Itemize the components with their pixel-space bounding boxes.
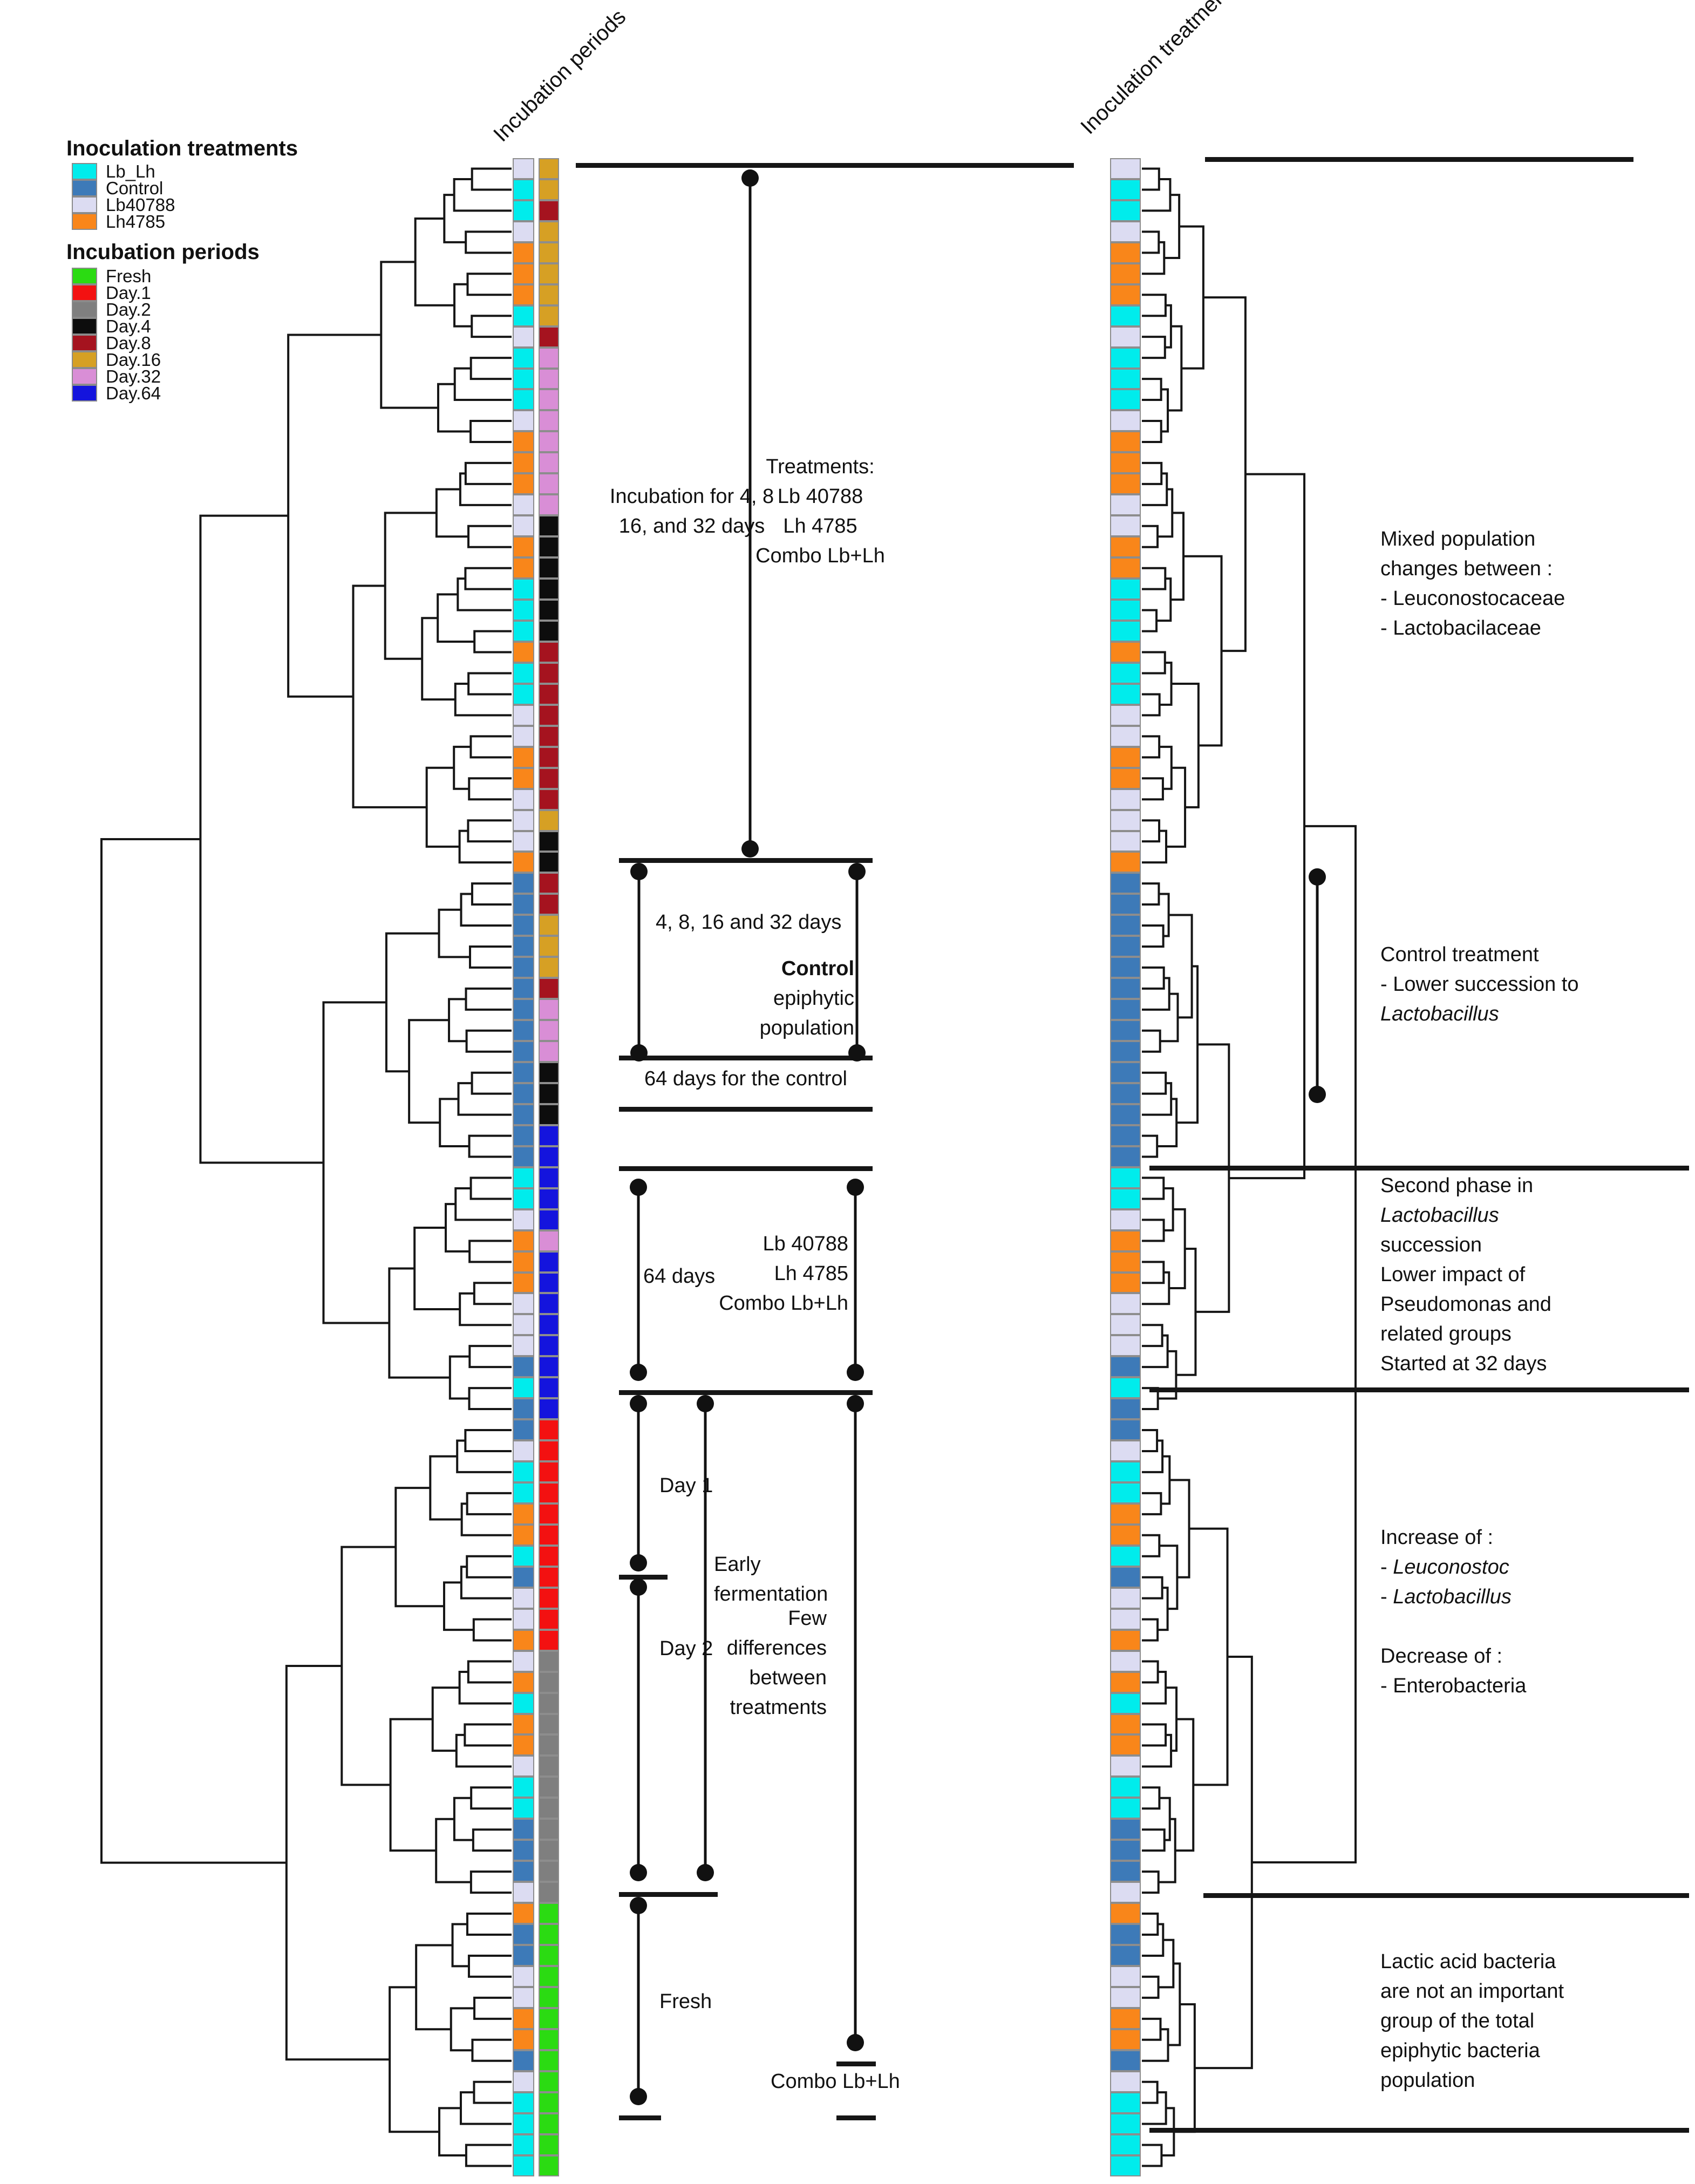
- heat-cell-Day.16: [539, 221, 559, 242]
- heat-cell-Day.64: [539, 1125, 559, 1146]
- heat-cell-Day.32: [539, 1230, 559, 1251]
- heat-cell-Lb_Lh: [1110, 369, 1141, 390]
- bracket-dot-icon: [1309, 1086, 1326, 1103]
- heat-cell-Day.8: [539, 894, 559, 915]
- heat-cell-Lh4785: [513, 431, 534, 452]
- heat-cell-Day.64: [539, 1273, 559, 1294]
- heat-cell-Day.8: [539, 684, 559, 705]
- heat-cell-Lb_Lh: [513, 389, 534, 410]
- annotation-day2: Day 2: [659, 1634, 713, 1664]
- heat-cell-Lh4785: [1110, 747, 1141, 768]
- heat-cell-Day.4: [539, 621, 559, 642]
- heat-cell-Control: [1110, 1083, 1141, 1104]
- heat-cell-Day.8: [539, 200, 559, 221]
- heat-cell-Fresh: [539, 2155, 559, 2176]
- heat-cell-Lh4785: [513, 473, 534, 494]
- heat-cell-Day.64: [539, 1377, 559, 1398]
- heat-cell-Lh4785: [513, 284, 534, 305]
- heat-cell-Lb_Lh: [513, 663, 534, 684]
- legend-period-swatch-icon: [72, 368, 97, 385]
- heat-cell-Lb_Lh: [513, 1461, 534, 1482]
- heat-cell-Lh4785: [1110, 242, 1141, 263]
- heat-cell-Lb40788: [513, 494, 534, 515]
- legend-period-item: Day.8: [72, 335, 161, 351]
- bracket-dot-icon: [630, 1179, 647, 1196]
- heat-cell-Lb40788: [1110, 2071, 1141, 2092]
- heat-cell-Day.64: [539, 1314, 559, 1335]
- heat-cell-Day.64: [539, 1167, 559, 1188]
- heat-cell-Lh4785: [1110, 1273, 1141, 1294]
- heat-cell-Lb_Lh: [1110, 684, 1141, 705]
- heat-cell-Lb_Lh: [513, 348, 534, 369]
- heat-cell-Lb_Lh: [1110, 1546, 1141, 1567]
- legend-period-item: Day.64: [72, 385, 161, 402]
- heat-cell-Day.2: [539, 1819, 559, 1840]
- heat-cell-Day.1: [539, 1525, 559, 1546]
- heat-cell-Fresh: [539, 2008, 559, 2029]
- heat-cell-Lh4785: [513, 536, 534, 557]
- heat-cell-Lh4785: [513, 2029, 534, 2050]
- heat-cell-Lb40788: [513, 789, 534, 810]
- bracket-dot-icon: [630, 1579, 647, 1596]
- heat-cell-Lb_Lh: [1110, 1377, 1141, 1398]
- bracket-dot-icon: [630, 1897, 647, 1914]
- heat-cell-Lb40788: [513, 810, 534, 831]
- separator-rule: [1203, 1893, 1689, 1898]
- heat-cell-Lh4785: [1110, 1251, 1141, 1273]
- heat-cell-Lb_Lh: [513, 1188, 534, 1209]
- legend-period-swatch-icon: [72, 385, 97, 402]
- heat-cell-Control: [1110, 873, 1141, 894]
- heat-cell-Lb40788: [1110, 1209, 1141, 1230]
- heat-cell-Lb40788: [513, 1882, 534, 1903]
- heat-cell-Control: [1110, 1398, 1141, 1419]
- heat-cell-Control: [513, 1924, 534, 1945]
- heat-cell-Control: [513, 957, 534, 978]
- heat-cell-Lb_Lh: [513, 2155, 534, 2176]
- heat-cell-Lb_Lh: [1110, 389, 1141, 410]
- heat-cell-Day.2: [539, 1840, 559, 1861]
- heat-cell-Lh4785: [513, 1734, 534, 1756]
- annotation-control-epiphytic: Controlepiphyticpopulation: [760, 954, 854, 1043]
- heat-cell-Control: [1110, 1861, 1141, 1882]
- heat-cell-Control: [1110, 915, 1141, 936]
- right-treatments-color-column: [1110, 158, 1141, 2176]
- heat-cell-Day.8: [539, 789, 559, 810]
- heat-cell-Lh4785: [513, 242, 534, 263]
- heat-cell-Day.4: [539, 1083, 559, 1104]
- heat-cell-Day.32: [539, 369, 559, 390]
- heat-cell-Day.64: [539, 1398, 559, 1419]
- annotation-lactic-acid: Lactic acid bacteriaare not an important…: [1380, 1947, 1564, 2095]
- heat-cell-Lb40788: [513, 1335, 534, 1356]
- heat-cell-Fresh: [539, 1903, 559, 1924]
- heat-cell-Day.1: [539, 1609, 559, 1630]
- heat-cell-Control: [513, 936, 534, 957]
- heat-cell-Lh4785: [1110, 1672, 1141, 1693]
- heat-cell-Fresh: [539, 2029, 559, 2050]
- heat-cell-Lh4785: [513, 452, 534, 473]
- heat-cell-Control: [513, 894, 534, 915]
- annotation-day1: Day 1: [659, 1471, 713, 1501]
- heat-cell-Fresh: [539, 2134, 559, 2155]
- legend-period-label: Day.8: [106, 335, 151, 351]
- heat-cell-Control: [1110, 1062, 1141, 1083]
- heat-cell-Control: [1110, 1020, 1141, 1041]
- annotation-days64-control: 64 days for the control: [644, 1064, 847, 1094]
- heat-cell-Day.4: [539, 600, 559, 621]
- heat-cell-Control: [513, 1041, 534, 1062]
- heat-cell-Lh4785: [513, 1672, 534, 1693]
- heat-cell-Lb40788: [1110, 326, 1141, 348]
- heat-cell-Day.64: [539, 1146, 559, 1167]
- legend-period-swatch-icon: [72, 351, 97, 368]
- heat-cell-Lh4785: [513, 642, 534, 663]
- annotation-incubation-4-32: Incubation for 4, 816, and 32 days: [610, 482, 774, 541]
- heat-cell-Lb_Lh: [513, 1377, 534, 1398]
- heat-cell-Day.2: [539, 1777, 559, 1798]
- heat-cell-Day.2: [539, 1651, 559, 1672]
- heat-cell-Lb40788: [513, 221, 534, 242]
- heat-cell-Day.8: [539, 978, 559, 999]
- heat-cell-Lb_Lh: [513, 2134, 534, 2155]
- bracket-dot-icon: [741, 169, 759, 187]
- heat-cell-Control: [1110, 1041, 1141, 1062]
- annotation-few-differences: Fewdifferencesbetweentreatments: [727, 1604, 827, 1723]
- heat-cell-Day.2: [539, 1693, 559, 1714]
- heat-cell-Lb_Lh: [1110, 200, 1141, 221]
- heat-cell-Day.16: [539, 305, 559, 326]
- heat-cell-Lb_Lh: [513, 621, 534, 642]
- annotation-mixed-population: Mixed populationchanges between :- Leuco…: [1380, 525, 1565, 643]
- heat-cell-Day.64: [539, 1356, 559, 1377]
- heat-cell-Fresh: [539, 1924, 559, 1945]
- heat-cell-Control: [513, 2050, 534, 2071]
- heat-cell-Day.16: [539, 936, 559, 957]
- legend-period-item: Day.32: [72, 368, 161, 385]
- separator-rule: [576, 163, 1074, 168]
- separator-rule: [619, 2115, 661, 2120]
- heat-cell-Control: [513, 999, 534, 1020]
- legend-period-label: Day.2: [106, 301, 151, 318]
- separator-rule: [1149, 2128, 1689, 2133]
- heat-cell-Day.32: [539, 348, 559, 369]
- heat-cell-Lb40788: [513, 1293, 534, 1314]
- heat-cell-Lb40788: [513, 410, 534, 431]
- heat-cell-Day.1: [539, 1588, 559, 1609]
- heat-cell-Lb40788: [513, 158, 534, 179]
- heat-cell-Lb40788: [1110, 1651, 1141, 1672]
- heat-cell-Lb_Lh: [513, 1777, 534, 1798]
- separator-rule: [619, 1390, 873, 1395]
- heat-cell-Control: [1110, 1567, 1141, 1588]
- legend-period-label: Day.4: [106, 318, 151, 335]
- heat-cell-Day.16: [539, 179, 559, 200]
- legend-treatments: Lb_LhControlLb40788Lh4785: [72, 163, 175, 230]
- heat-cell-Lb_Lh: [1110, 663, 1141, 684]
- heat-cell-Day.4: [539, 515, 559, 536]
- heat-cell-Control: [513, 1819, 534, 1840]
- heat-cell-Day.2: [539, 1714, 559, 1735]
- heat-cell-Lh4785: [513, 1273, 534, 1294]
- separator-rule: [1205, 157, 1633, 162]
- heat-cell-Lb40788: [1110, 789, 1141, 810]
- legend-treatment-item: Lb_Lh: [72, 163, 175, 180]
- heat-cell-Day.4: [539, 536, 559, 557]
- heat-cell-Lh4785: [1110, 2008, 1141, 2029]
- heat-cell-Lb40788: [1110, 726, 1141, 747]
- legend-period-label: Day.1: [106, 284, 151, 301]
- legend-title-periods: Incubation periods: [66, 240, 260, 264]
- left-periods-color-column: [539, 158, 559, 2176]
- left-dendrogram: [101, 168, 512, 2166]
- heat-cell-Day.16: [539, 242, 559, 263]
- heat-cell-Lb_Lh: [1110, 1693, 1141, 1714]
- bracket-dot-icon: [697, 1864, 714, 1881]
- annotation-brackets: [630, 169, 1326, 2105]
- heat-cell-Lh4785: [513, 557, 534, 579]
- heat-cell-Lh4785: [513, 1630, 534, 1651]
- heat-cell-Day.1: [539, 1630, 559, 1651]
- legend-period-item: Day.1: [72, 284, 161, 301]
- bracket-dot-icon: [630, 1864, 647, 1881]
- heat-cell-Day.32: [539, 389, 559, 410]
- heat-cell-Fresh: [539, 1945, 559, 1966]
- heat-cell-Day.16: [539, 263, 559, 284]
- heat-cell-Day.1: [539, 1440, 559, 1461]
- annotation-early-fermentation: Earlyfermentation: [714, 1550, 828, 1609]
- heat-cell-Day.4: [539, 1104, 559, 1125]
- legend-period-label: Day.16: [106, 351, 161, 368]
- heat-cell-Control: [513, 1945, 534, 1966]
- heat-cell-Control: [1110, 894, 1141, 915]
- heat-cell-Day.4: [539, 1062, 559, 1083]
- heat-cell-Lh4785: [1110, 1630, 1141, 1651]
- heat-cell-Fresh: [539, 1987, 559, 2008]
- heat-cell-Lb_Lh: [1110, 600, 1141, 621]
- legend-title-treatments: Inoculation treatments: [66, 137, 298, 161]
- heat-cell-Control: [1110, 1419, 1141, 1440]
- heat-cell-Lb40788: [513, 1588, 534, 1609]
- separator-rule: [836, 2115, 876, 2120]
- bracket-dot-icon: [630, 1554, 647, 1571]
- heat-cell-Lb_Lh: [1110, 179, 1141, 200]
- legend-period-label: Fresh: [106, 268, 151, 284]
- legend-treatment-swatch-icon: [72, 180, 97, 196]
- bracket-dot-icon: [1309, 868, 1326, 886]
- legend-treatment-item: Control: [72, 180, 175, 196]
- legend-periods: FreshDay.1Day.2Day.4Day.8Day.16Day.32Day…: [72, 268, 161, 402]
- annotation-control-treatment: Control treatment- Lower succession toLa…: [1380, 940, 1579, 1029]
- heat-cell-Lh4785: [1110, 473, 1141, 494]
- heat-cell-Control: [513, 915, 534, 936]
- heat-cell-Day.4: [539, 831, 559, 852]
- heat-cell-Day.16: [539, 158, 559, 179]
- heat-cell-Lh4785: [513, 768, 534, 789]
- annotation-second-phase: Second phase inLactobacillussuccessionLo…: [1380, 1171, 1551, 1379]
- heat-cell-Lh4785: [513, 852, 534, 873]
- heat-cell-Control: [513, 1104, 534, 1125]
- heat-cell-Day.64: [539, 1188, 559, 1209]
- heat-cell-Day.8: [539, 326, 559, 348]
- heat-cell-Control: [1110, 1840, 1141, 1861]
- heat-cell-Control: [513, 1020, 534, 1041]
- heat-cell-Lb40788: [513, 1440, 534, 1461]
- heat-cell-Lh4785: [1110, 284, 1141, 305]
- heat-cell-Day.8: [539, 705, 559, 726]
- heat-cell-Lb40788: [513, 326, 534, 348]
- heat-cell-Control: [513, 1356, 534, 1377]
- heat-cell-Day.32: [539, 473, 559, 494]
- heat-cell-Day.32: [539, 1020, 559, 1041]
- heat-cell-Control: [513, 1146, 534, 1167]
- heat-cell-Lb_Lh: [1110, 579, 1141, 600]
- heat-cell-Lh4785: [1110, 1230, 1141, 1251]
- separator-rule: [619, 858, 873, 863]
- heat-cell-Fresh: [539, 2050, 559, 2071]
- bracket-dot-icon: [848, 1044, 866, 1062]
- heat-cell-Day.32: [539, 431, 559, 452]
- heat-cell-Lb_Lh: [1110, 1167, 1141, 1188]
- heat-cell-Control: [513, 873, 534, 894]
- legend-treatment-item: Lh4785: [72, 213, 175, 230]
- heat-cell-Lh4785: [513, 2008, 534, 2029]
- heat-cell-Lb40788: [1110, 410, 1141, 431]
- heat-cell-Lb_Lh: [513, 684, 534, 705]
- heat-cell-Lb_Lh: [513, 305, 534, 326]
- heat-cell-Day.32: [539, 410, 559, 431]
- heat-cell-Control: [1110, 978, 1141, 999]
- heat-cell-Lb40788: [1110, 494, 1141, 515]
- legend-treatment-item: Lb40788: [72, 196, 175, 213]
- heat-cell-Control: [1110, 1819, 1141, 1840]
- heat-cell-Lb40788: [513, 1966, 534, 1987]
- heat-cell-Control: [513, 1398, 534, 1419]
- heat-cell-Lb40788: [1110, 831, 1141, 852]
- heat-cell-Day.2: [539, 1734, 559, 1756]
- legend-period-item: Day.2: [72, 301, 161, 318]
- heat-cell-Lb40788: [1110, 1335, 1141, 1356]
- heat-cell-Lh4785: [513, 747, 534, 768]
- heat-cell-Day.2: [539, 1756, 559, 1777]
- heat-cell-Day.16: [539, 957, 559, 978]
- heat-cell-Lb40788: [1110, 221, 1141, 242]
- heat-cell-Lb40788: [1110, 1314, 1141, 1335]
- heat-cell-Lh4785: [1110, 1903, 1141, 1924]
- heat-cell-Lb40788: [513, 1651, 534, 1672]
- heat-cell-Day.8: [539, 747, 559, 768]
- annotation-treatments-mid: Lb 40788Lh 4785Combo Lb+Lh: [719, 1229, 848, 1318]
- legend-treatment-label: Lb_Lh: [106, 163, 155, 180]
- heat-cell-Day.1: [539, 1482, 559, 1503]
- heat-cell-Lb40788: [1110, 1987, 1141, 2008]
- heat-cell-Lb_Lh: [513, 200, 534, 221]
- dendrogram-svg: [0, 0, 1695, 2184]
- heat-cell-Lb_Lh: [1110, 621, 1141, 642]
- legend-period-swatch-icon: [72, 335, 97, 351]
- legend-period-label: Day.64: [106, 385, 161, 402]
- heat-cell-Day.32: [539, 452, 559, 473]
- bracket-dot-icon: [630, 1395, 647, 1412]
- heat-cell-Fresh: [539, 1966, 559, 1987]
- heat-cell-Control: [1110, 957, 1141, 978]
- heat-cell-Day.4: [539, 579, 559, 600]
- heat-cell-Lb_Lh: [513, 1798, 534, 1819]
- heat-cell-Lh4785: [513, 1903, 534, 1924]
- bracket-dot-icon: [847, 1364, 864, 1381]
- heat-cell-Control: [1110, 2050, 1141, 2071]
- heat-cell-Lh4785: [1110, 452, 1141, 473]
- heat-cell-Lh4785: [513, 1525, 534, 1546]
- bracket-dot-icon: [847, 1395, 864, 1412]
- heat-cell-Day.2: [539, 1672, 559, 1693]
- heat-cell-Lb_Lh: [1110, 1798, 1141, 1819]
- heat-cell-Lh4785: [1110, 1714, 1141, 1735]
- heat-cell-Lb_Lh: [1110, 2113, 1141, 2134]
- heat-cell-Control: [1110, 1104, 1141, 1125]
- heat-cell-Lb_Lh: [513, 579, 534, 600]
- legend-period-item: Fresh: [72, 268, 161, 284]
- heat-cell-Day.2: [539, 1861, 559, 1882]
- heat-cell-Control: [513, 978, 534, 999]
- separator-rule: [619, 1166, 873, 1171]
- bracket-dot-icon: [630, 1364, 647, 1381]
- heat-cell-Day.1: [539, 1567, 559, 1588]
- heat-cell-Lb_Lh: [1110, 348, 1141, 369]
- heat-cell-Lb40788: [1110, 1293, 1141, 1314]
- heat-cell-Day.8: [539, 642, 559, 663]
- heat-cell-Lb_Lh: [1110, 2134, 1141, 2155]
- heat-cell-Control: [1110, 1125, 1141, 1146]
- heat-cell-Lb40788: [513, 515, 534, 536]
- legend-period-item: Day.4: [72, 318, 161, 335]
- legend-treatment-label: Lh4785: [106, 213, 165, 230]
- annotation-fresh-label: Fresh: [659, 1987, 712, 2017]
- heat-cell-Lb_Lh: [513, 1482, 534, 1503]
- heat-cell-Day.64: [539, 1335, 559, 1356]
- heat-cell-Lb_Lh: [513, 600, 534, 621]
- bracket-dot-icon: [630, 2088, 647, 2105]
- heat-cell-Day.64: [539, 1251, 559, 1273]
- separator-rule: [1149, 1166, 1689, 1171]
- heat-cell-Lb40788: [1110, 810, 1141, 831]
- heat-cell-Lb40788: [513, 726, 534, 747]
- heat-cell-Control: [1110, 1146, 1141, 1167]
- heat-cell-Lb40788: [513, 2071, 534, 2092]
- heat-cell-Control: [513, 1567, 534, 1588]
- heat-cell-Lb_Lh: [1110, 1461, 1141, 1482]
- heat-cell-Lh4785: [1110, 852, 1141, 873]
- heat-cell-Lh4785: [1110, 431, 1141, 452]
- heat-cell-Lb40788: [1110, 1440, 1141, 1461]
- annotation-days-4-32: 4, 8, 16 and 32 days: [656, 908, 841, 937]
- heat-cell-Control: [513, 1861, 534, 1882]
- heat-cell-Control: [513, 1419, 534, 1440]
- heat-cell-Day.32: [539, 494, 559, 515]
- legend-treatment-swatch-icon: [72, 163, 97, 180]
- separator-rule: [836, 2061, 876, 2066]
- heat-cell-Lh4785: [513, 1503, 534, 1525]
- heat-cell-Day.1: [539, 1546, 559, 1567]
- heat-cell-Fresh: [539, 2092, 559, 2113]
- bracket-dot-icon: [697, 1395, 714, 1412]
- legend-period-swatch-icon: [72, 318, 97, 335]
- heat-cell-Control: [513, 1083, 534, 1104]
- heat-cell-Day.32: [539, 1041, 559, 1062]
- heat-cell-Lh4785: [513, 263, 534, 284]
- annotation-days64: 64 days: [643, 1262, 715, 1291]
- heat-cell-Day.2: [539, 1798, 559, 1819]
